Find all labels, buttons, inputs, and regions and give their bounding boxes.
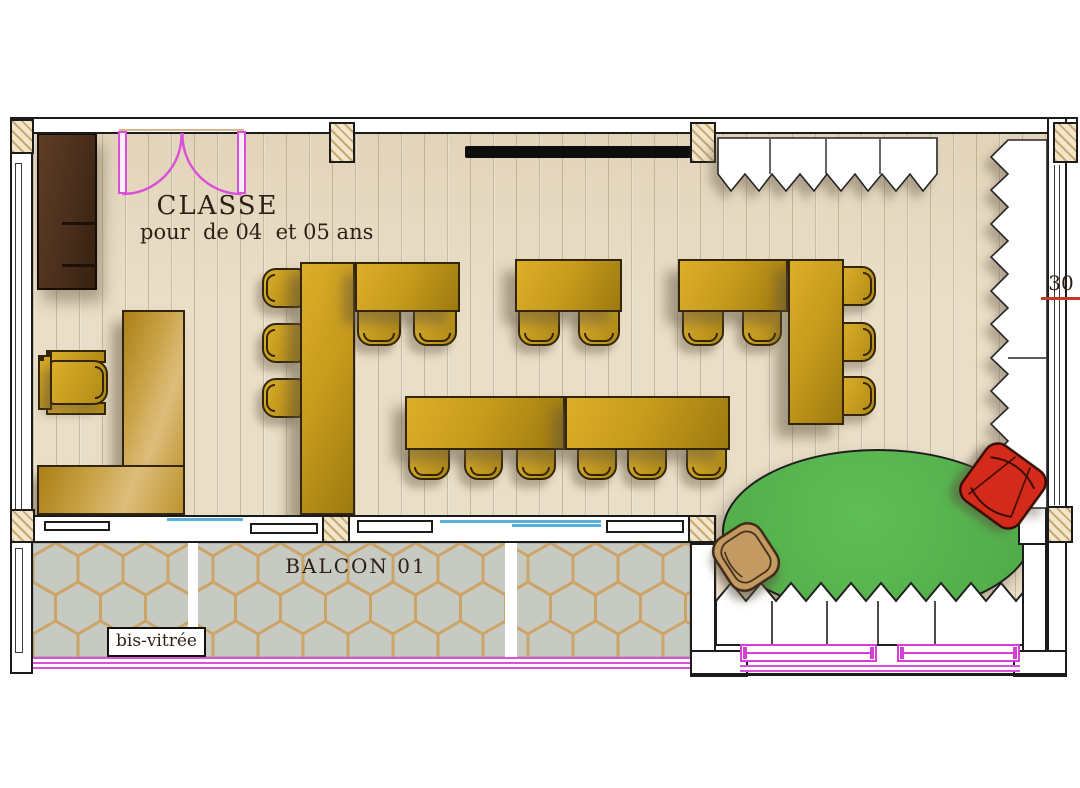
student-chair (408, 446, 450, 480)
sliding-glass-line (167, 518, 243, 521)
wall-right (1047, 117, 1067, 677)
column (10, 509, 35, 543)
teacher-chair-seat (50, 360, 108, 405)
student-table (788, 259, 844, 425)
cabinet-shelf-line (62, 222, 97, 225)
student-chair (577, 446, 617, 480)
student-chair (262, 378, 302, 418)
student-table (355, 262, 460, 312)
bay-outer-sill-lines (740, 665, 1020, 672)
wall-right-inner-line (1059, 165, 1060, 505)
student-chair (627, 446, 667, 480)
student-chair (840, 322, 876, 362)
window-bar (357, 520, 433, 533)
floor-plan: CLASSE pour de 04 et 05 ans BALCON 01 bi… (0, 0, 1080, 788)
student-chair (742, 308, 782, 346)
rug (722, 449, 1034, 615)
student-chair (682, 308, 724, 346)
teacher-desk-horizontal (37, 465, 185, 515)
blackboard (465, 146, 692, 158)
sliding-glass-line (440, 520, 601, 523)
teacher-chair (38, 350, 112, 415)
bay-window-magenta (740, 644, 877, 662)
room-subtitle-label: pour de 04 et 05 ans (140, 221, 365, 243)
balcony-label: BALCON 01 (280, 556, 432, 577)
window-bar (250, 523, 318, 534)
column (322, 515, 350, 543)
column (688, 515, 716, 543)
student-chair (516, 446, 556, 480)
room-name-label: CLASSE (150, 193, 285, 220)
bay-window-magenta (897, 644, 1020, 662)
wall-right-patch (1018, 505, 1047, 545)
student-table (565, 396, 730, 450)
student-table (405, 396, 565, 450)
student-chair (840, 376, 876, 416)
student-chair (357, 308, 401, 346)
balcony-divider (505, 543, 517, 657)
bay-bottom-outline (690, 673, 1067, 676)
glazing-label: bis-vitrée (116, 633, 197, 651)
balcony-left-window (15, 548, 23, 653)
column (1053, 122, 1078, 163)
student-chair (518, 308, 560, 346)
student-chair (262, 323, 302, 363)
student-table (300, 262, 355, 515)
student-chair (262, 268, 302, 308)
column (1047, 506, 1073, 543)
dimension-underline (1041, 297, 1080, 300)
glazing-label-box: bis-vitrée (107, 627, 206, 657)
student-table (515, 259, 622, 312)
door-lintel (119, 129, 244, 131)
student-chair (464, 446, 503, 480)
bay-wall-right (1022, 543, 1047, 665)
student-chair (413, 308, 457, 346)
wall-left-inner-line (15, 163, 22, 510)
bay-wall-left (690, 543, 716, 665)
dimension-label: 30 (1042, 273, 1080, 294)
door-jamb-left (118, 131, 127, 194)
column (329, 122, 355, 163)
sliding-glass-line (512, 524, 601, 527)
column (690, 122, 716, 163)
cabinet-shelf-line (62, 264, 97, 267)
column (10, 119, 34, 154)
student-chair (686, 446, 727, 480)
student-chair (578, 308, 620, 346)
balcony-railing (33, 657, 690, 671)
wall-right-inner-line (1054, 165, 1055, 505)
student-table (678, 259, 788, 312)
student-chair (840, 266, 876, 306)
window-bar (606, 520, 684, 533)
door-jamb-right (237, 131, 246, 194)
window-bar (44, 521, 110, 531)
